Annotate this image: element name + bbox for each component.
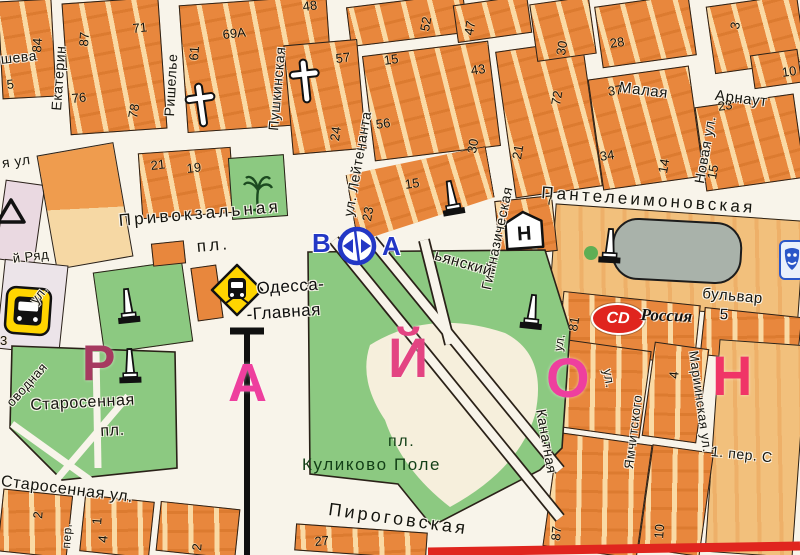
monument-icon xyxy=(516,291,548,338)
palm-tree-icon xyxy=(243,170,273,212)
bus-station-icon xyxy=(2,284,53,337)
city-block xyxy=(695,93,800,191)
park-label: пл. xyxy=(388,434,415,450)
monument-icon xyxy=(115,346,145,391)
district-letter: Й xyxy=(388,330,428,386)
warning-triangle-icon xyxy=(0,196,27,226)
city-block xyxy=(638,444,714,555)
monument-icon xyxy=(112,285,144,332)
theater-icon xyxy=(779,238,800,282)
city-block xyxy=(346,0,468,47)
park-label: Куликово Поле xyxy=(302,456,441,473)
city-block xyxy=(750,49,800,89)
street-label: Старосенная xyxy=(30,393,135,414)
street-label: я ул xyxy=(1,152,31,170)
city-block xyxy=(453,0,533,43)
city-block xyxy=(294,523,428,555)
park-inner-field xyxy=(366,323,538,507)
park-block xyxy=(93,260,194,354)
church-cross-icon xyxy=(286,56,325,105)
map-canvas[interactable]: Н CD xyxy=(0,0,800,555)
starosennaya-square xyxy=(10,346,177,480)
road-sign-letter: В xyxy=(312,230,331,256)
building xyxy=(151,240,186,266)
street-label: пл. xyxy=(196,235,231,255)
street-label: пл. xyxy=(100,423,125,440)
city-block xyxy=(37,142,134,270)
park-road-casing xyxy=(334,240,560,518)
city-block xyxy=(138,147,235,219)
monument-icon xyxy=(595,225,625,270)
gray-building xyxy=(610,217,743,286)
city-block xyxy=(556,340,651,439)
city-block xyxy=(594,0,697,68)
street-label: оводная xyxy=(4,360,50,409)
cd-label: CD xyxy=(606,310,630,329)
street-label: ьянский xyxy=(433,248,494,279)
place-label: Одесса- xyxy=(256,275,325,297)
church-cross-icon xyxy=(181,80,221,130)
park-road xyxy=(334,240,560,518)
city-block xyxy=(588,65,705,190)
city-block xyxy=(156,501,241,555)
road-sign-letter: А xyxy=(382,233,401,259)
city-block xyxy=(495,40,603,199)
city-block xyxy=(705,339,800,555)
city-block xyxy=(642,342,710,444)
city-block xyxy=(62,0,168,135)
city-block xyxy=(0,489,73,555)
city-block xyxy=(542,432,652,555)
hospital-icon: Н xyxy=(502,208,547,253)
district-letter: А xyxy=(228,356,267,410)
city-block xyxy=(529,0,596,62)
city-block xyxy=(79,494,155,555)
city-block xyxy=(362,41,501,162)
square-paths xyxy=(12,352,128,480)
svg-text:Н: Н xyxy=(516,223,532,246)
city-block xyxy=(0,0,57,99)
road-sign-icon xyxy=(334,223,380,269)
train-station-icon xyxy=(210,263,264,317)
